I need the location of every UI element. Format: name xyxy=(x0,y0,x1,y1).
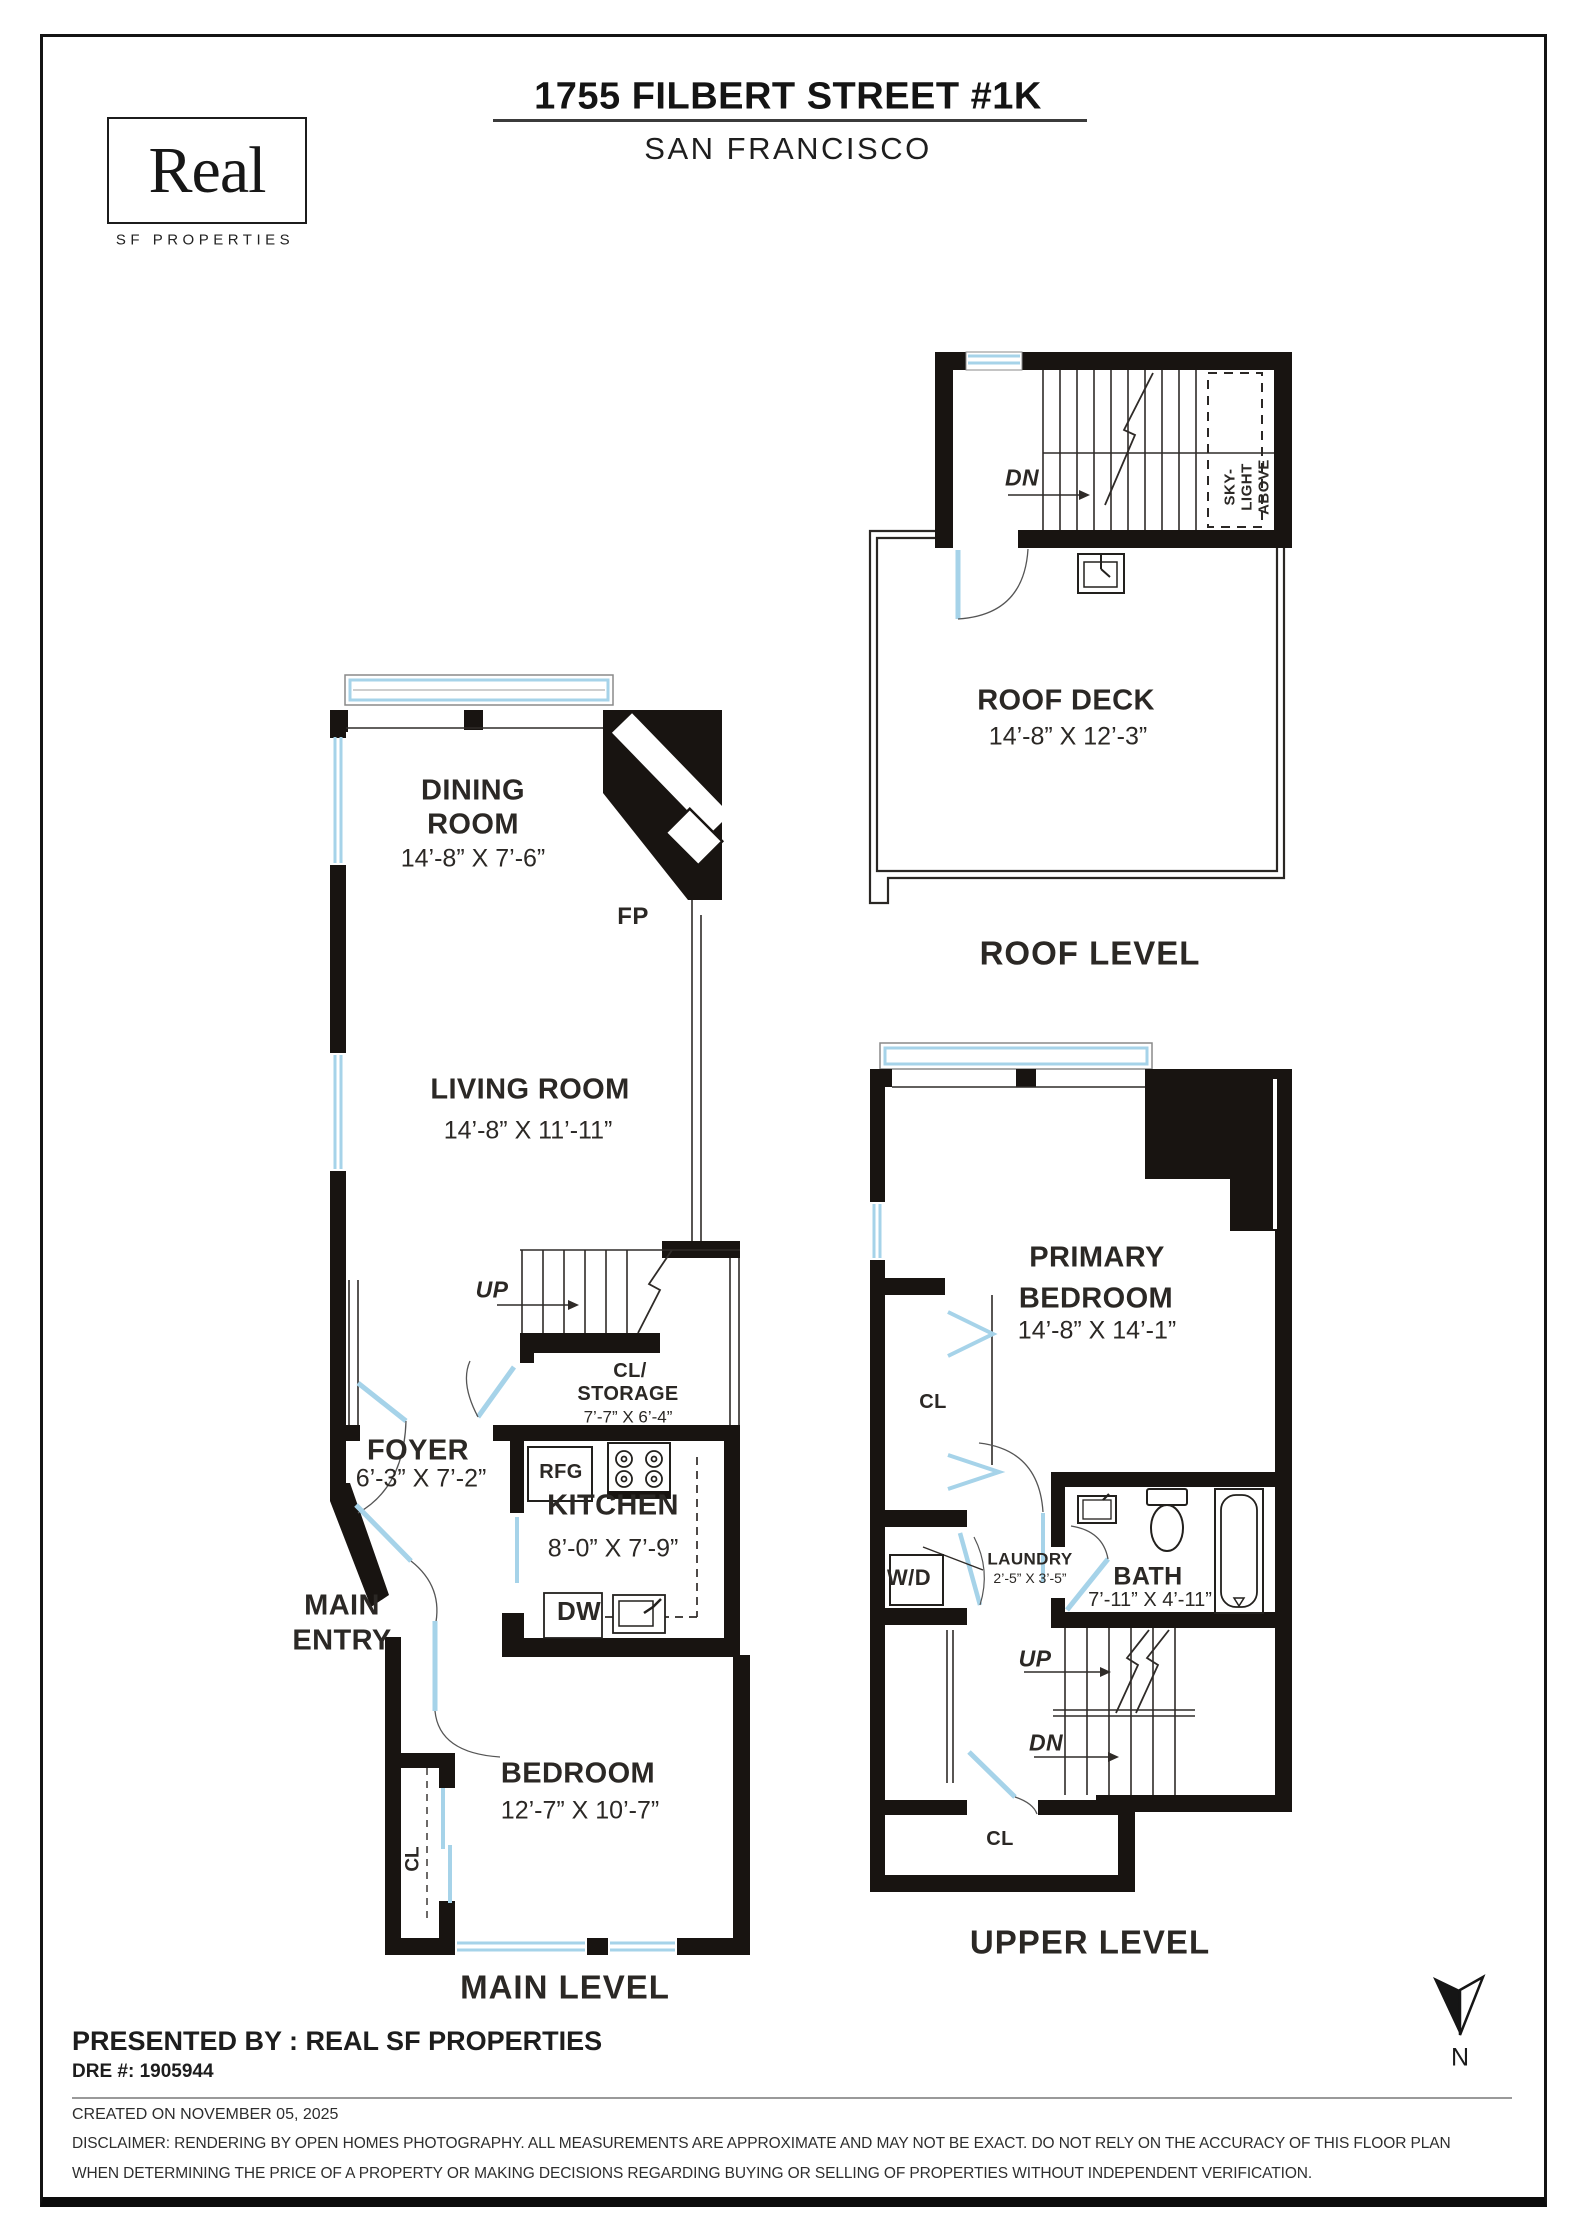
roof-level-plan xyxy=(858,335,1318,1005)
primary-bay-window xyxy=(880,1043,1152,1069)
north-arrow-icon xyxy=(1425,1968,1497,2048)
toilet-icon xyxy=(1147,1489,1187,1551)
upper-walls xyxy=(870,1069,1292,1892)
disclaimer-line-1: DISCLAIMER: RENDERING BY OPEN HOMES PHOT… xyxy=(72,2135,1451,2153)
deck-sink-icon xyxy=(1078,554,1124,593)
refrigerator-label: RFG xyxy=(539,1462,582,1482)
main-level-plan xyxy=(292,665,792,2055)
floor-plan-page: Real SF PROPERTIES 1755 FILBERT STREET #… xyxy=(0,0,1584,2240)
dishwasher-label: DW xyxy=(557,1598,601,1624)
main-level-caption: MAIN LEVEL xyxy=(460,1971,670,2004)
dining-room-label-1: DINING xyxy=(421,777,525,806)
roof-deck-dims: 14’-8” X 12’-3” xyxy=(989,725,1147,750)
main-entry-label-2: ENTRY xyxy=(292,1627,391,1656)
living-room-dims: 14’-8” X 11’-11” xyxy=(444,1119,613,1144)
main-entry-label-1: MAIN xyxy=(304,1592,380,1621)
primary-bedroom-label-1: PRIMARY xyxy=(1029,1244,1164,1273)
bath-dims: 7’-11” X 4’-11” xyxy=(1088,1590,1212,1610)
upper-closet-label: CL xyxy=(919,1392,946,1412)
bedroom-windows xyxy=(385,1938,750,1955)
dining-room-label-2: ROOM xyxy=(427,811,519,840)
kitchen-dims: 8’-0” X 7’-9” xyxy=(548,1537,679,1562)
storage-label-2: STORAGE xyxy=(577,1384,678,1404)
brand-logo-text: Real xyxy=(149,133,266,209)
footer-divider xyxy=(72,2097,1512,2099)
primary-bedroom-dims: 14’-8” X 14’-1” xyxy=(1018,1319,1176,1344)
washer-dryer-label: W/D xyxy=(887,1567,931,1589)
upper-stairs-dn-label: DN xyxy=(1029,1732,1063,1755)
page-title: 1755 FILBERT STREET #1K xyxy=(534,76,1042,119)
foyer-dims: 6’-3” X 7’-2” xyxy=(356,1467,487,1492)
roof-walls xyxy=(935,352,1292,548)
bath-label: BATH xyxy=(1113,1565,1182,1590)
foyer-label: FOYER xyxy=(367,1437,469,1466)
wall-seam xyxy=(1273,1079,1277,1229)
created-date: CREATED ON NOVEMBER 05, 2025 xyxy=(72,2106,338,2124)
main-stairs-up-label: UP xyxy=(476,1279,509,1302)
kitchen-sink-icon xyxy=(613,1595,665,1633)
title-underline xyxy=(493,119,1087,122)
page-subtitle: SAN FRANCISCO xyxy=(644,131,931,167)
upper-level-caption: UPPER LEVEL xyxy=(970,1926,1210,1959)
roof-level-caption: ROOF LEVEL xyxy=(980,937,1201,970)
living-room-label: LIVING ROOM xyxy=(430,1076,629,1105)
roof-window xyxy=(966,352,1022,370)
north-label: N xyxy=(1451,2044,1469,2073)
upper-level-plan xyxy=(856,1035,1336,1995)
upper-stairs-up-label: UP xyxy=(1019,1648,1052,1671)
primary-bedroom-label-2: BEDROOM xyxy=(1019,1285,1173,1314)
upper-interior-lines xyxy=(892,1087,1145,1783)
skylight-label: SKY- LIGHT ABOVE xyxy=(1222,459,1273,515)
main-doors xyxy=(356,1361,514,1757)
dre-number: DRE #: 1905944 xyxy=(72,2061,214,2083)
storage-dims: 7’-7” X 6’-4” xyxy=(584,1409,673,1426)
kitchen-label: KITCHEN xyxy=(547,1492,679,1521)
fireplace-label: FP xyxy=(617,905,648,929)
roof-stairs-dn-label: DN xyxy=(1005,467,1039,490)
brand-logo: Real xyxy=(107,117,307,224)
bedroom-label: BEDROOM xyxy=(501,1760,655,1789)
roof-deck-label: ROOF DECK xyxy=(977,687,1155,716)
laundry-dims: 2’-5” X 3’-5” xyxy=(993,1571,1066,1585)
bedroom-dims: 12’-7” X 10’-7” xyxy=(501,1799,659,1824)
main-stairs xyxy=(497,1250,740,1333)
closet-sliding-door xyxy=(427,1768,450,1921)
bedroom-closet-label: CL xyxy=(404,1846,423,1871)
bathtub-icon xyxy=(1215,1489,1263,1613)
disclaimer-line-2: WHEN DETERMINING THE PRICE OF A PROPERTY… xyxy=(72,2165,1312,2183)
bath-sink-icon xyxy=(1078,1494,1116,1523)
presented-by-text: PRESENTED BY : REAL SF PROPERTIES xyxy=(72,2026,602,2057)
dining-room-dims: 14’-8” X 7’-6” xyxy=(401,847,546,872)
upper-closet-bottom-label: CL xyxy=(986,1829,1013,1849)
brand-logo-subtitle: SF PROPERTIES xyxy=(116,233,294,248)
dining-bay-window xyxy=(345,675,613,705)
upper-left-window xyxy=(874,1204,880,1258)
storage-label-1: CL/ xyxy=(613,1361,646,1381)
laundry-label: LAUNDRY xyxy=(987,1551,1072,1568)
roof-door xyxy=(958,549,1028,619)
